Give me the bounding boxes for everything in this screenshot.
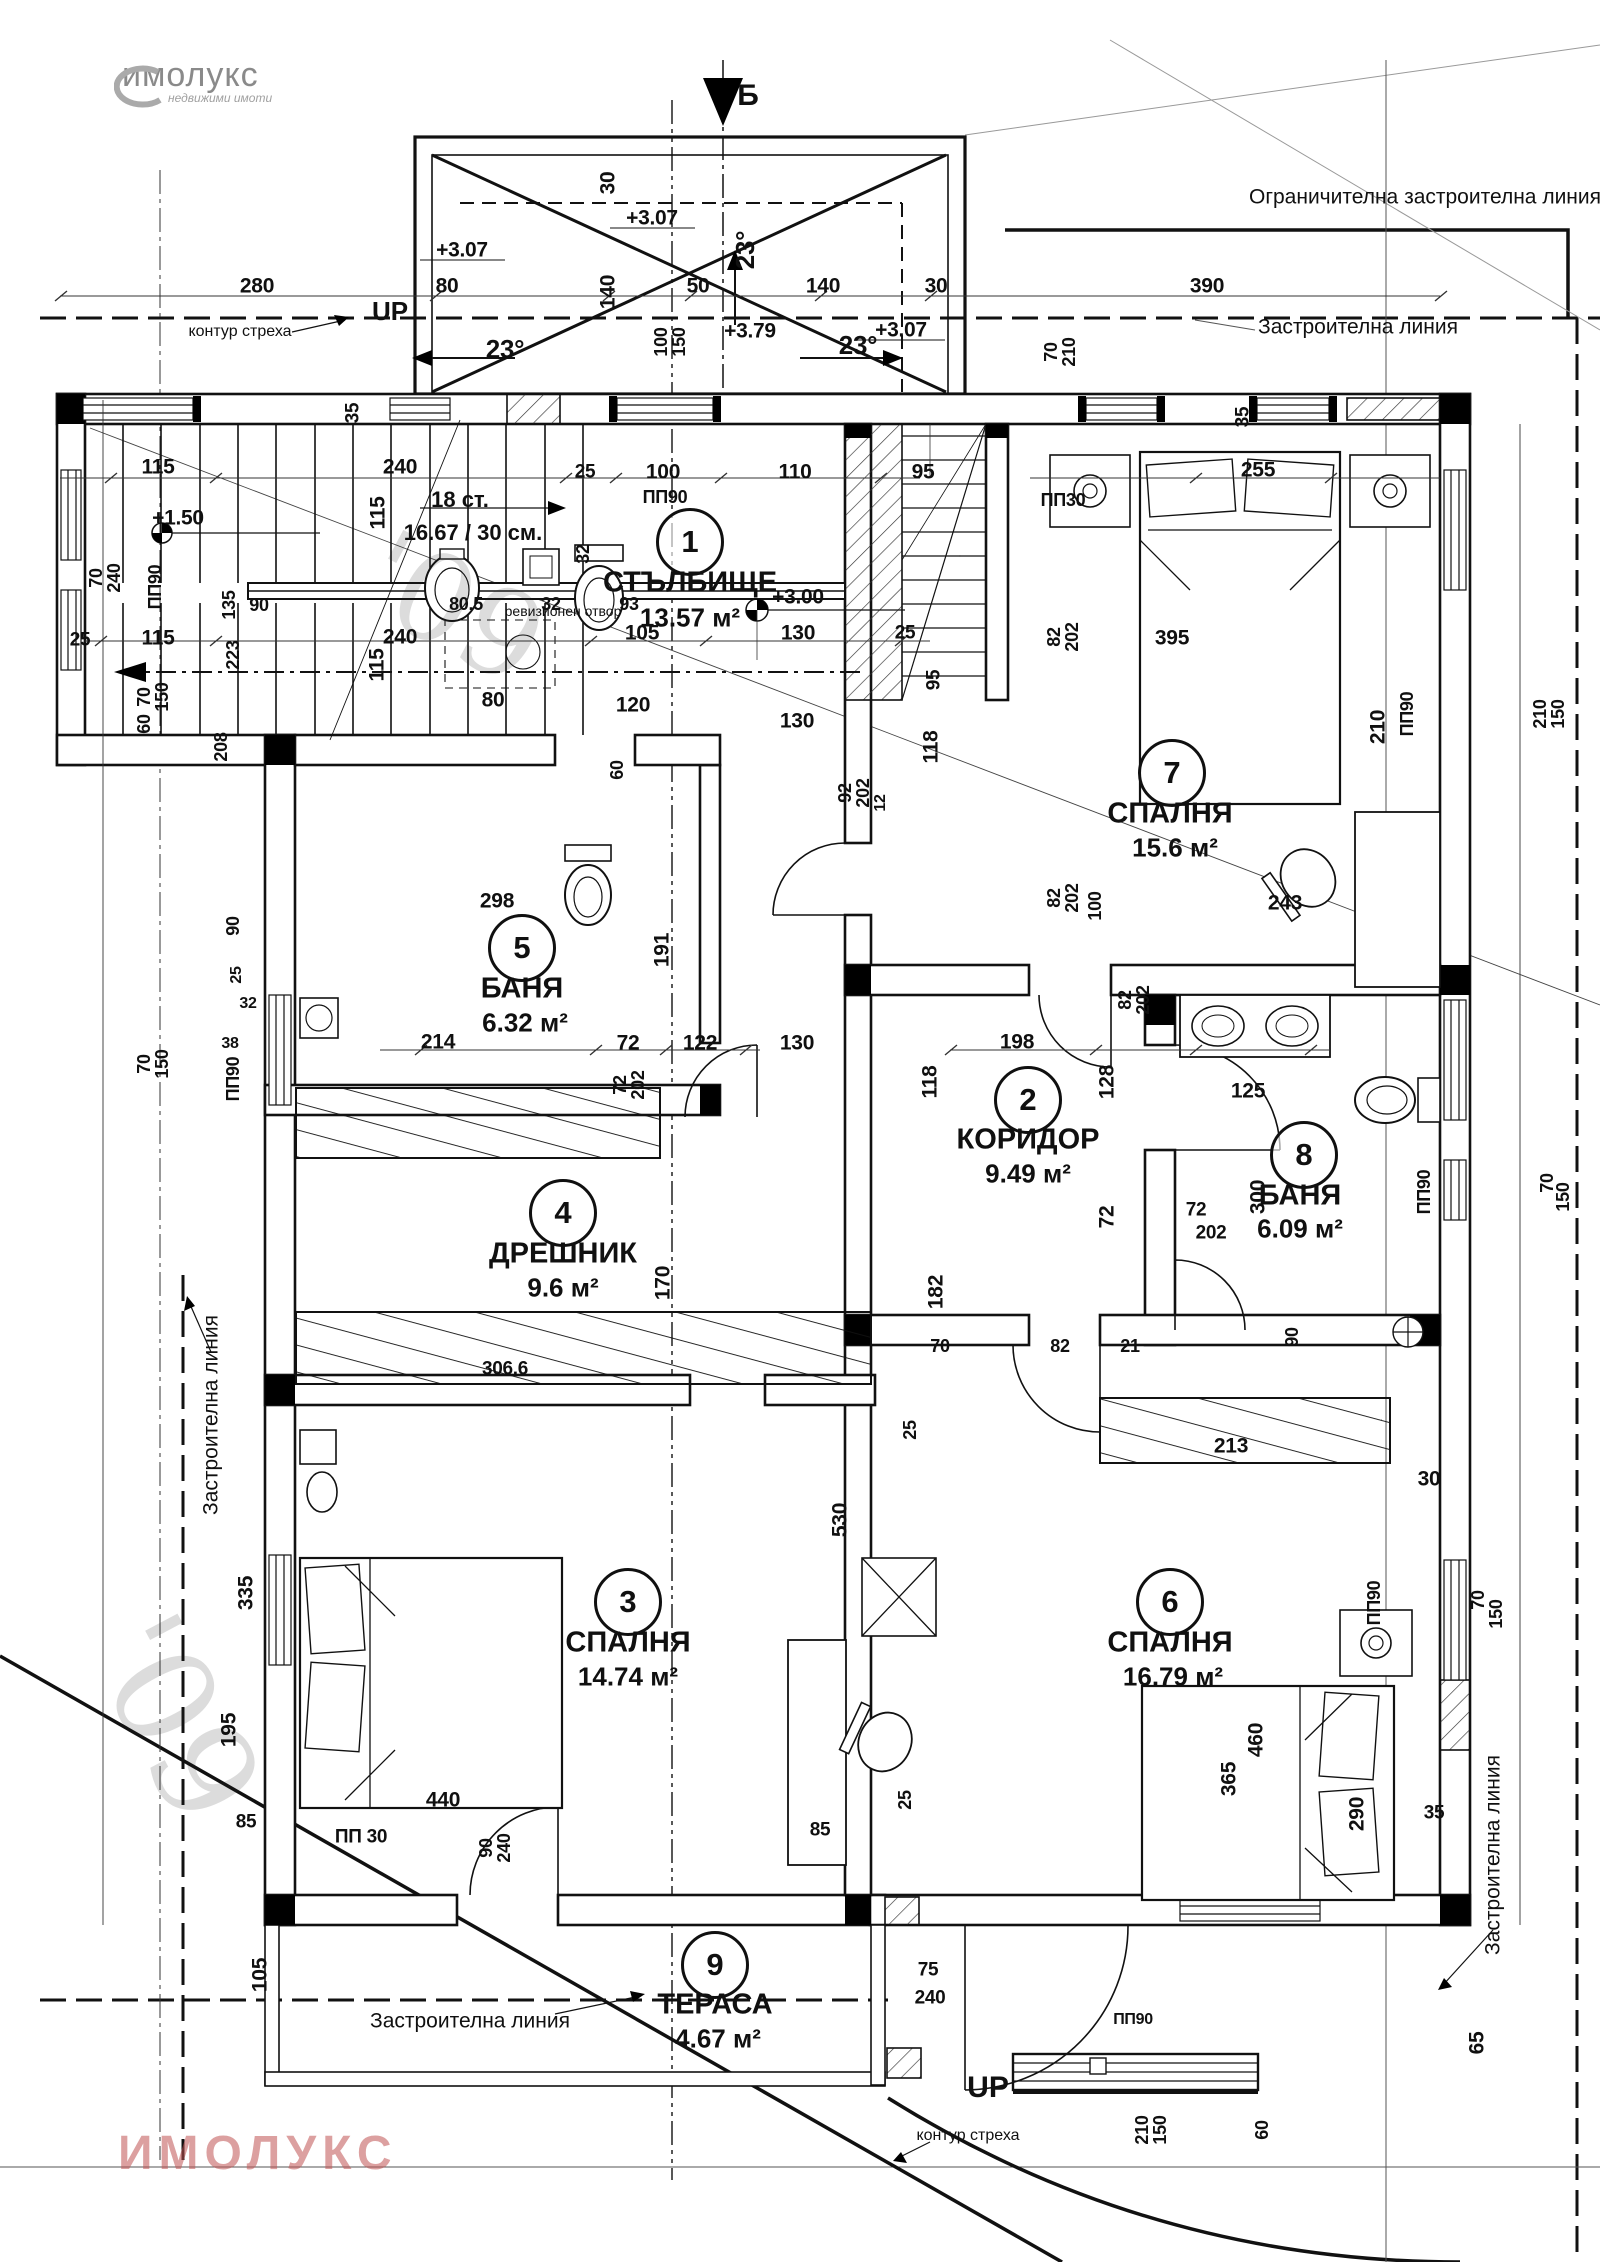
room-name: СПАЛНЯ xyxy=(1107,798,1232,831)
room-name: БАНЯ xyxy=(1259,1180,1341,1213)
room-name: ДРЕШНИК xyxy=(489,1238,637,1271)
room-area: 16.79 м² xyxy=(1123,1662,1223,1693)
room-name: СПАЛНЯ xyxy=(565,1627,690,1660)
room-area: 6.09 м² xyxy=(1257,1214,1343,1245)
room-area: 13.57 м² xyxy=(640,603,740,634)
room-area: 14.74 м² xyxy=(578,1662,678,1693)
room-name: БАНЯ xyxy=(481,973,563,1006)
watermark: ИМОЛУКС xyxy=(118,2126,398,2181)
room-name: СТЪЛБИЩЕ xyxy=(603,567,777,600)
room-area: 15.6 м² xyxy=(1132,833,1218,864)
room-area: 9.6 м² xyxy=(527,1273,598,1304)
room-area: 9.49 м² xyxy=(985,1159,1071,1190)
room-area: 6.32 м² xyxy=(482,1008,568,1039)
room-labels: 1 СТЪЛБИЩЕ 13.57 м² 2 КОРИДОР 9.49 м² 3 … xyxy=(0,0,1600,2262)
room-name: ТЕРАСА xyxy=(657,1989,772,2022)
floorplan-canvas: имолукс недвижими имоти '09 '09 28080301… xyxy=(0,0,1600,2262)
room-name: СПАЛНЯ xyxy=(1107,1627,1232,1660)
room-area: 4.67 м² xyxy=(675,2024,761,2055)
room-name: КОРИДОР xyxy=(956,1124,1099,1157)
